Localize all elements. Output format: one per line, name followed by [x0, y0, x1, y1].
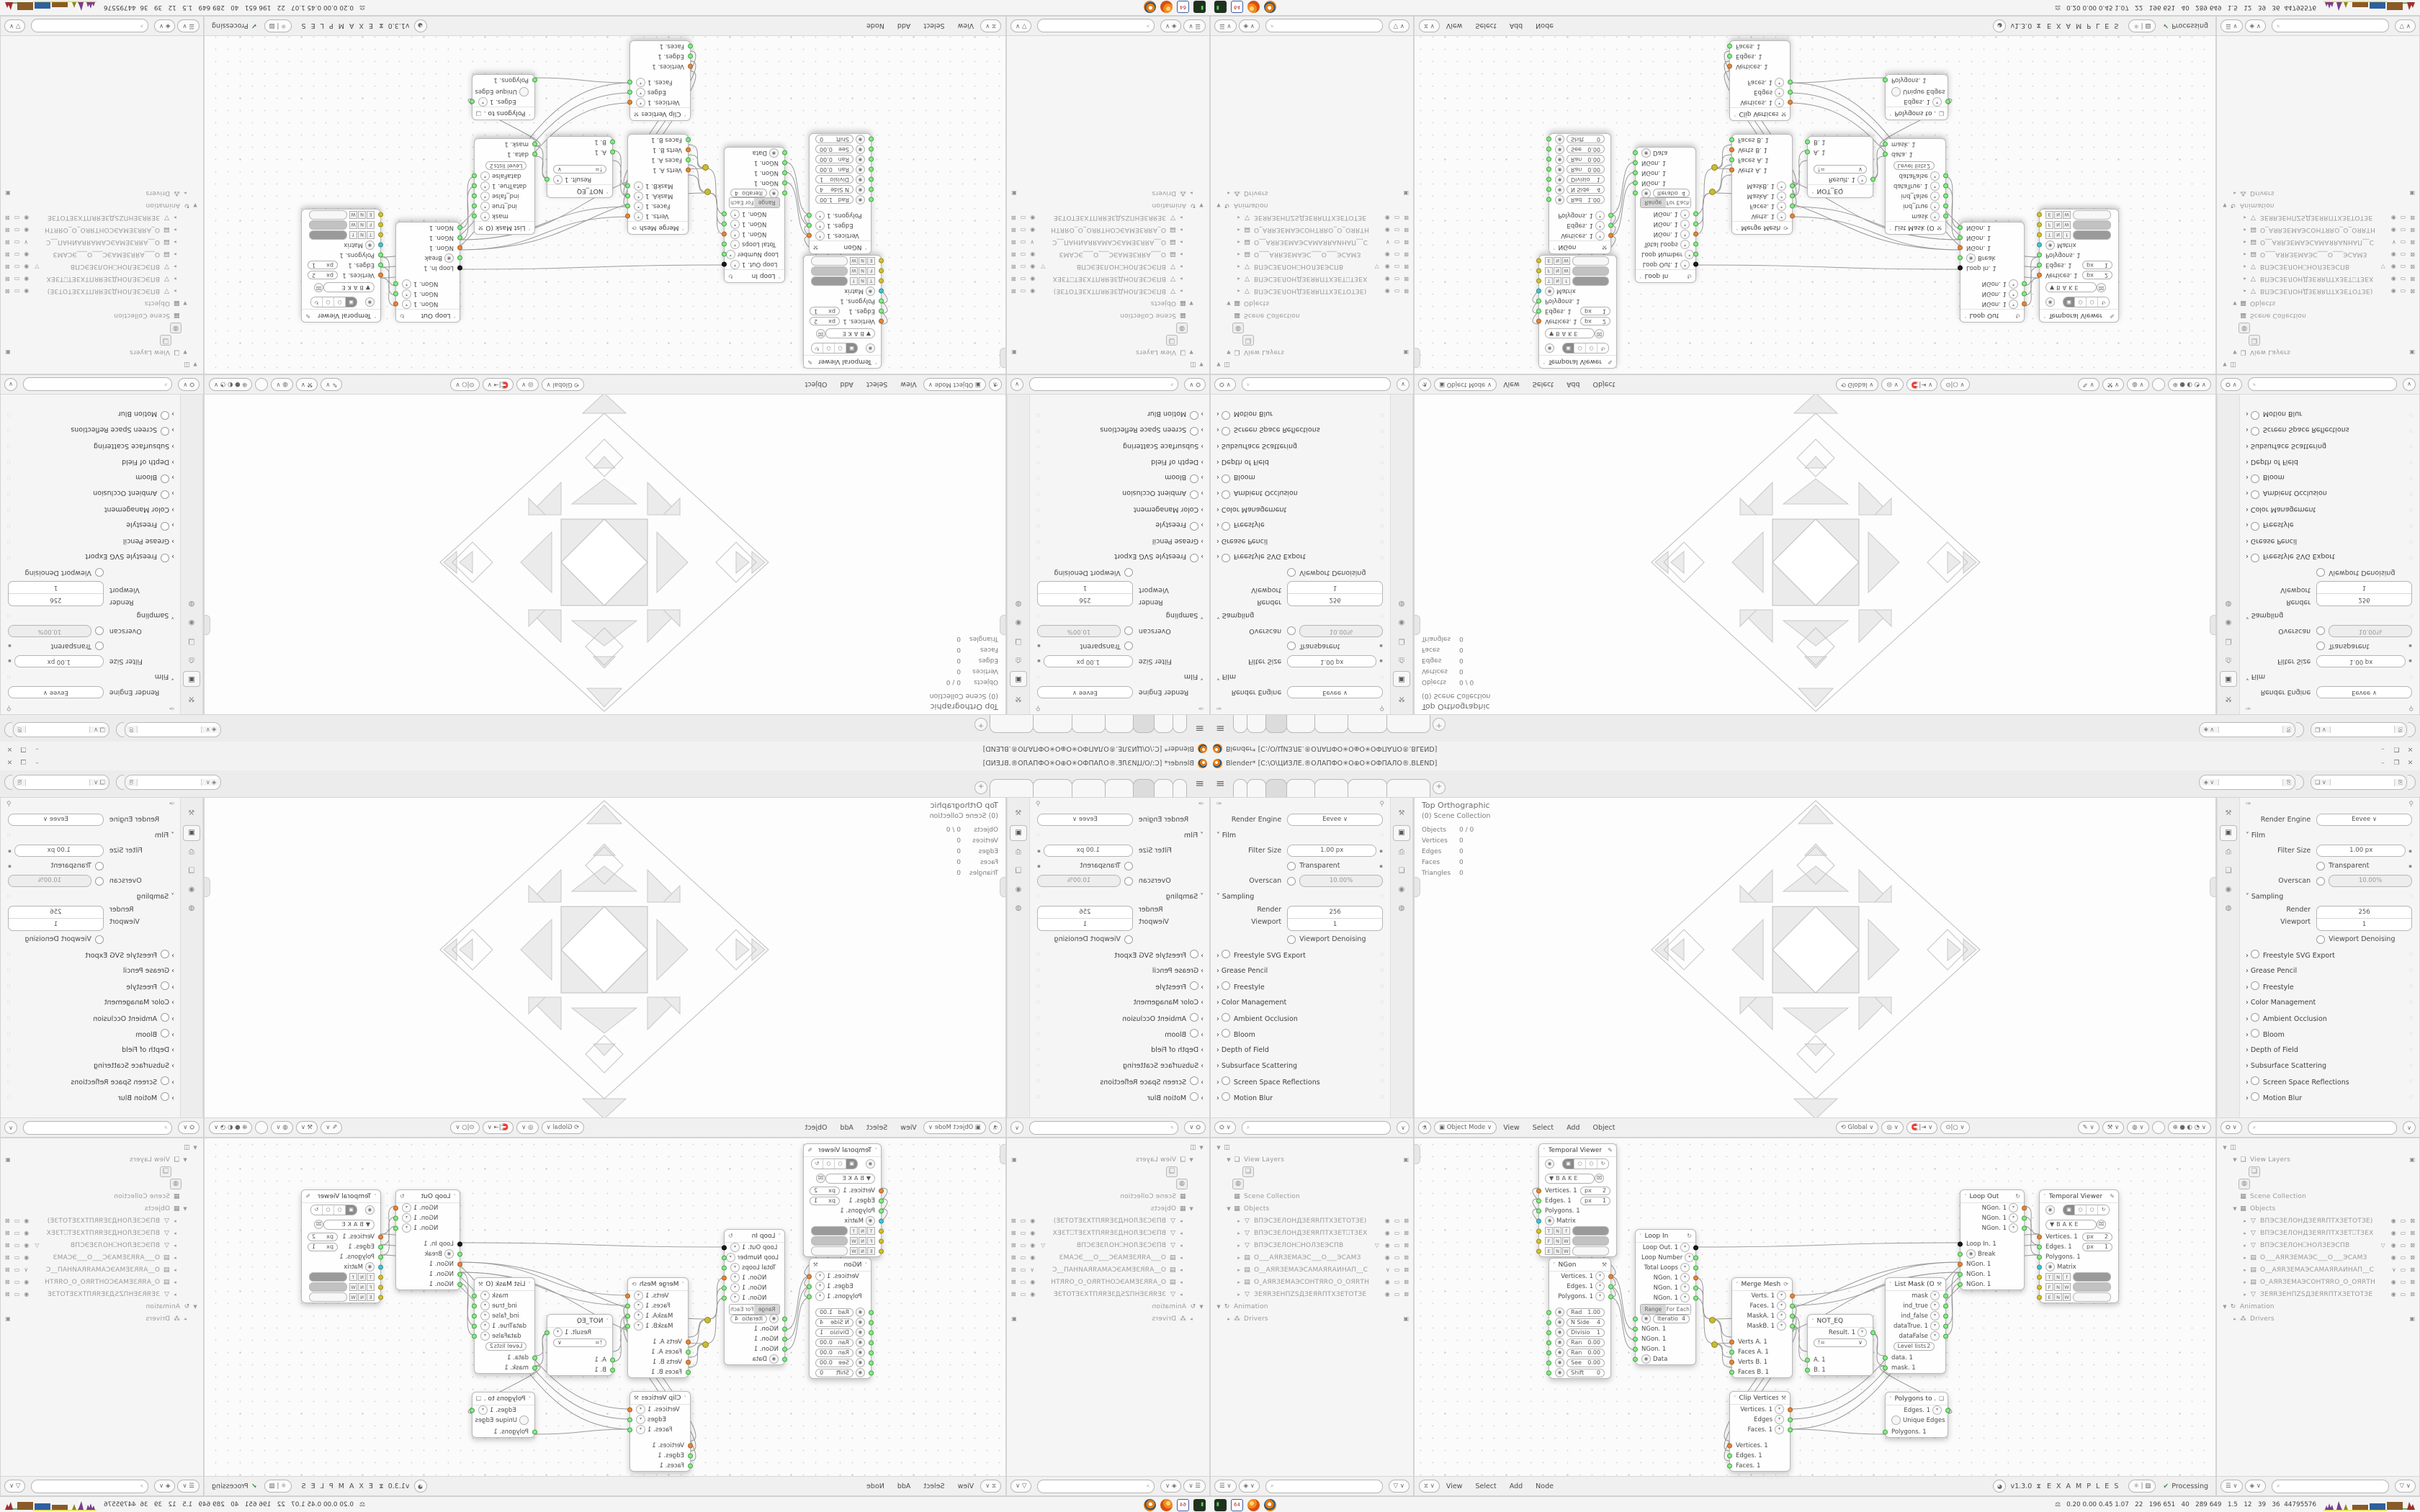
socket-green[interactable]: [1546, 177, 1551, 182]
workspace-tab[interactable]: [1314, 779, 1348, 797]
socket-green[interactable]: [1790, 184, 1795, 189]
color-swatch[interactable]: [309, 230, 347, 240]
node-row-in[interactable]: Loop In. 1: [1960, 263, 2024, 273]
color-swatch[interactable]: [2073, 1272, 2111, 1282]
screen-icon[interactable]: ▭: [2401, 239, 2406, 246]
bake-button[interactable]: ▼ BAKE: [323, 1220, 375, 1230]
socket-menu-icon[interactable]: ▾: [480, 1321, 490, 1331]
row-arrow-icon[interactable]: ▼: [2231, 1206, 2238, 1212]
socket-cyan[interactable]: [1536, 1219, 1541, 1224]
node-header[interactable]: ˅Temporal Viewer✎: [1539, 1144, 1616, 1157]
row-arrow-icon[interactable]: ▼: [1188, 1157, 1195, 1163]
node-header-icon[interactable]: ↻: [400, 1193, 408, 1200]
screen-icon[interactable]: ▭: [1021, 276, 1026, 282]
viewer-display-toggles[interactable]: ▣○○↻: [1562, 343, 1609, 354]
socket-green[interactable]: [1633, 1327, 1638, 1332]
node-row-icons[interactable]: ◉▣○○↻: [804, 341, 881, 355]
toggle-icon[interactable]: ▣: [1011, 1315, 1017, 1322]
render-visibility-icon[interactable]: ⊠: [5, 239, 10, 246]
node-row-field[interactable]: ◉See0.00: [1549, 1358, 1610, 1368]
render-samples-value[interactable]: 256: [2317, 595, 2411, 606]
px-field[interactable]: px1: [2082, 1243, 2112, 1251]
node-row-out[interactable]: Faces. 1▾: [1730, 1425, 1790, 1435]
render-engine-select[interactable]: Eevee ∨: [2316, 686, 2412, 698]
node-header[interactable]: ˅List Mask (O..⚒: [1886, 221, 1945, 234]
socket-green[interactable]: [1536, 1199, 1541, 1204]
number-field[interactable]: Divisio1: [1567, 1328, 1605, 1337]
socket-green[interactable]: [1883, 1366, 1888, 1371]
node-row-button[interactable]: Level lists2: [1886, 1341, 1945, 1353]
workspace-tab[interactable]: [1348, 715, 1387, 733]
render-visibility-icon[interactable]: ⊠: [5, 264, 10, 270]
socket-green[interactable]: [1608, 223, 1613, 228]
node-row-out[interactable]: Result. 1▾: [547, 174, 612, 184]
viewport-3d[interactable]: Top Orthographic (0) Scene Collection Ob…: [1414, 374, 2216, 715]
overscan-checkbox[interactable]: [1124, 627, 1133, 636]
outliner-row-object-camera[interactable]: ▸▤О_АЯRЗЕМАЭСОНТЯRО_О_ОЯRТН◉▭⊠: [2, 224, 202, 236]
expand-arrow-icon[interactable]: ›: [1216, 1015, 1222, 1023]
socket-orange[interactable]: [2037, 273, 2042, 278]
node-row-radio[interactable]: Unique Edges: [1886, 1416, 1948, 1427]
number-field[interactable]: N Side4: [815, 1318, 853, 1327]
viewer-toggle-icon[interactable]: ↻: [2098, 297, 2109, 307]
swatch-option-button[interactable]: E: [1545, 1247, 1553, 1255]
viewport-menu-select[interactable]: Select: [1533, 1124, 1554, 1132]
node-row-out[interactable]: NGon. 1▾: [1636, 229, 1695, 239]
node-menu-view[interactable]: View: [958, 22, 974, 30]
outliner-row-object-camera[interactable]: ▸▤О__АЯRЗЕМАЭСАМАЯRАИНАП__С∨▭⊠: [1008, 236, 1208, 248]
socket-olive[interactable]: [1536, 1249, 1541, 1254]
outliner-row-world-item[interactable]: ◍: [1008, 1178, 1208, 1190]
socket-green[interactable]: [782, 1347, 787, 1352]
node-row-out[interactable]: ind_true▾: [1886, 1301, 1945, 1311]
screen-icon[interactable]: ▭: [14, 1254, 20, 1261]
socket-orange[interactable]: [688, 1444, 693, 1449]
color-swatch[interactable]: [1572, 256, 1609, 266]
eye-icon[interactable]: ◉: [2391, 276, 2396, 282]
outliner-row-object-camera[interactable]: ▸▤О__АЯRЗЕМАЭСАМАЯRАИНАП__С∨▭⊠: [2, 236, 202, 248]
node-header[interactable]: ˅Temporal Viewer✎: [2040, 309, 2118, 322]
node-row-in[interactable]: Verts B. 1: [1732, 145, 1792, 155]
socket-green[interactable]: [686, 138, 691, 143]
toggle-button[interactable]: ◉: [1641, 148, 1651, 158]
expand-arrow-icon[interactable]: ›: [2246, 506, 2251, 514]
swatch-option-button[interactable]: T: [367, 231, 375, 239]
node-row-in[interactable]: NGon. 1: [1636, 168, 1695, 178]
node-row-toggle[interactable]: ◉Break: [396, 253, 460, 263]
node-row-in[interactable]: Polygons. 1: [804, 296, 881, 306]
row-arrow-icon[interactable]: ▼: [1225, 350, 1232, 356]
swatch-option-button[interactable]: f: [2063, 231, 2071, 239]
node-row-in[interactable]: data. 1: [475, 1353, 534, 1363]
properties-options-button[interactable]: ∨: [1010, 1121, 1023, 1134]
id-type-icon[interactable]: ❏ ∨: [89, 726, 109, 733]
section-checkbox[interactable]: [2251, 1013, 2259, 1022]
viewer-toggle-icon[interactable]: ○: [333, 297, 345, 307]
expand-arrow-icon[interactable]: ›: [169, 1079, 174, 1086]
properties-tab-scene[interactable]: ◉: [2220, 615, 2236, 629]
px-field[interactable]: px1: [810, 1197, 840, 1205]
socket-green[interactable]: [782, 1327, 787, 1332]
display-mode-selector[interactable]: ☰ ∨: [1214, 19, 1237, 32]
node-header-icon[interactable]: ✎: [305, 1193, 313, 1200]
node-row-swatch[interactable]: ENW: [302, 1292, 380, 1302]
socket-menu-icon[interactable]: ▾: [2009, 300, 2018, 309]
toggle-icon[interactable]: ▣: [1403, 1156, 1409, 1163]
anim-dot-icon[interactable]: ▪: [1379, 863, 1383, 869]
socket-menu-icon[interactable]: ▾: [730, 230, 740, 239]
socket-green[interactable]: [627, 90, 632, 95]
node-row-out[interactable]: MaskB. 1▾: [628, 181, 688, 191]
node-row-in[interactable]: Faces. 1: [630, 41, 690, 51]
outliner-row-view-layer-item[interactable]: ❏: [2, 334, 202, 346]
socket-green[interactable]: [722, 252, 727, 257]
sverchok-node-editor[interactable]: ˅Temporal Viewer✎◉▣○○↻▼ BAKE⌧Vertices. 1…: [204, 1138, 1006, 1496]
socket-green[interactable]: [472, 204, 477, 209]
swatch-option-button[interactable]: F: [867, 267, 875, 275]
copy-id-icon[interactable]: ⎘: [14, 726, 26, 734]
row-arrow-icon[interactable]: ▸: [171, 264, 179, 270]
id-name-field[interactable]: [2219, 775, 2282, 789]
node-clip-vertices[interactable]: ˅Clip Vertices⚒Vertices. 1▾Edges▾Faces. …: [1729, 40, 1791, 121]
node-not-eq[interactable]: ˅NOT_EQResult. 1▾!=∨A. 1B. 1: [1807, 1314, 1873, 1376]
socket-menu-icon[interactable]: ▾: [1775, 78, 1784, 87]
filter-button[interactable]: ▽ ∨: [1010, 19, 1031, 32]
outliner-row-object-mesh[interactable]: ▸▽ВПЭСЗЕЛОН⎕НОЛЗЕЭСПВ▽◉▭⊠: [1008, 261, 1208, 273]
outliner-row-animation[interactable]: ▼↻Animation: [1008, 1300, 1208, 1313]
screen-icon[interactable]: ▭: [1021, 215, 1026, 221]
socket-green[interactable]: [457, 1252, 462, 1257]
screen-icon[interactable]: ▭: [2401, 1279, 2406, 1285]
node-header-icon[interactable]: ❏: [1936, 1395, 1944, 1402]
workspace-tab[interactable]: [1233, 779, 1247, 797]
socket-menu-icon[interactable]: ▾: [1930, 1321, 1940, 1331]
properties-tab-scene[interactable]: ◉: [184, 883, 200, 897]
outliner-row-object-mesh[interactable]: ▸▽ВПЭСЗЕЛОНДЗЕЯRПТХЗЕТ⎕ТЗЕХ◉▭⊠: [2, 273, 202, 285]
field-toggle-button[interactable]: ◉: [1555, 1358, 1564, 1367]
expand-arrow-icon[interactable]: ›: [2246, 1031, 2251, 1039]
screen-icon[interactable]: ▭: [14, 1266, 20, 1273]
socket-menu-icon[interactable]: ▾: [815, 231, 825, 240]
editor-type-icon[interactable]: ⚗: [989, 378, 1002, 391]
anim-dot-icon[interactable]: ▪: [1379, 659, 1383, 665]
row-arrow-icon[interactable]: ▸: [2231, 191, 2238, 197]
node-row-toggle[interactable]: ◉Matrix: [1539, 286, 1616, 296]
screen-icon[interactable]: ▭: [1394, 1266, 1400, 1273]
render-samples-value[interactable]: 256: [1288, 906, 1382, 918]
row-arrow-icon[interactable]: ▼: [2221, 362, 2228, 368]
number-field[interactable]: Divisio1: [815, 1328, 853, 1337]
row-arrow-icon[interactable]: ▼: [1225, 1157, 1232, 1163]
socket-green[interactable]: [1608, 1284, 1613, 1290]
id-name-field[interactable]: [138, 775, 201, 789]
field-toggle-button[interactable]: ◉: [1641, 1314, 1651, 1323]
node-row-button[interactable]: Level lists2: [475, 159, 534, 171]
field-toggle-button[interactable]: ◉: [856, 1358, 865, 1367]
toggle-icon[interactable]: ∨: [24, 1266, 28, 1273]
socket-green[interactable]: [1943, 204, 1948, 209]
row-arrow-icon[interactable]: ▼: [1225, 301, 1232, 307]
node-row-out[interactable]: Loop Number▾: [725, 249, 784, 259]
socket-green[interactable]: [1788, 90, 1793, 95]
properties-tab-render[interactable]: ▣: [2220, 671, 2237, 687]
collapsed-section[interactable]: › Freestyle∷: [1030, 978, 1209, 994]
viewer-toggle-icon[interactable]: ○: [333, 1205, 345, 1215]
render-visibility-icon[interactable]: ⊠: [2410, 1218, 2415, 1224]
outliner-row-object-mesh[interactable]: ▸▽ЗЕЯRЗЕНПZSДЗЕЯRПТХЗЕТОТЗЕ◉▭⊠: [2218, 1288, 2418, 1300]
socket-green[interactable]: [1883, 78, 1888, 83]
swatch-option-button[interactable]: F: [1545, 267, 1553, 275]
number-field[interactable]: Ran0.00: [815, 1338, 853, 1347]
node-menu-add[interactable]: Add: [897, 22, 910, 30]
filter-button[interactable]: ▽ ∨: [4, 1480, 25, 1493]
row-arrow-icon[interactable]: ▸: [171, 252, 179, 258]
socket-menu-icon[interactable]: ▾: [726, 250, 735, 259]
socket-olive[interactable]: [879, 1229, 884, 1234]
expand-arrow-icon[interactable]: ›: [1216, 1031, 1222, 1039]
number-field[interactable]: Iteratio4: [730, 189, 767, 198]
socket-olive[interactable]: [2037, 212, 2042, 217]
xray-toggle[interactable]: ◍ ∨: [271, 1121, 292, 1134]
px-field[interactable]: px1: [308, 1243, 338, 1251]
id-type-icon[interactable]: ◈ ∨: [2200, 726, 2219, 733]
shading-preview-sphere[interactable]: [255, 1121, 268, 1134]
eye-icon[interactable]: ◉: [1030, 288, 1035, 294]
swatch-option-button[interactable]: N: [2054, 211, 2062, 219]
socket-olive[interactable]: [1536, 1239, 1541, 1244]
collapse-chevron-icon[interactable]: ˅: [1889, 1282, 1892, 1287]
viewport-samples-value[interactable]: 1: [9, 582, 103, 595]
socket-menu-icon[interactable]: ▾: [480, 1311, 490, 1320]
socket-orange[interactable]: [1729, 168, 1734, 173]
render-engine-select[interactable]: Eevee ∨: [1287, 814, 1383, 826]
collapsed-section[interactable]: › Subsurface Scattering∷: [2240, 438, 2419, 454]
socket-menu-icon[interactable]: ▾: [1930, 212, 1940, 221]
socket-orange[interactable]: [625, 214, 630, 219]
eye-icon[interactable]: ◉: [2391, 227, 2396, 233]
properties-tab-render[interactable]: ▣: [183, 825, 200, 841]
node-header[interactable]: ˅NGon⚒: [810, 240, 871, 253]
node-not-eq[interactable]: ˅NOT_EQResult. 1▾!=∨A. 1B. 1: [1807, 136, 1873, 198]
collapsed-section[interactable]: › Subsurface Scattering∷: [1211, 438, 1390, 454]
socket-orange[interactable]: [1693, 1276, 1698, 1281]
socket-green[interactable]: [1945, 99, 1950, 104]
examples-label[interactable]: E X A M P L E S: [300, 22, 373, 30]
tree-type-icon[interactable]: ⧖ ∨: [980, 19, 1001, 32]
row-arrow-icon[interactable]: ▸: [2241, 276, 2249, 282]
section-checkbox[interactable]: [161, 1013, 169, 1022]
node-panel-toggles[interactable]: ⚛ | ▨: [2128, 1480, 2156, 1493]
node-row-field[interactable]: ◉Rad1.00: [810, 194, 871, 204]
render-visibility-icon[interactable]: ⊠: [1404, 1279, 1409, 1285]
render-visibility-icon[interactable]: ⊠: [5, 1266, 10, 1273]
socket-green[interactable]: [1693, 222, 1698, 227]
socket-black[interactable]: [1958, 1242, 1963, 1247]
node-temporal-viewer[interactable]: ˅Temporal Viewer✎◉▣○○↻▼ BAKE⌧Vertices. 1…: [301, 209, 381, 323]
anim-dot-icon[interactable]: ▪: [2408, 659, 2412, 665]
outliner-row-object-mesh[interactable]: ▸▽ВПЭСЗЕЛОНДЗЕЯRПТХЗЕТ⎕ТЗЕХ◉▭⊠: [2218, 1227, 2418, 1239]
node-header[interactable]: ˅Loop Out↻: [396, 309, 460, 322]
node-row-field[interactable]: ◉Divisio1: [1549, 174, 1610, 184]
viewport-samples-value[interactable]: 1: [2317, 582, 2411, 595]
node-row-out[interactable]: Total Loops▾: [1636, 239, 1695, 249]
workspace-tab[interactable]: [1348, 779, 1387, 797]
pin-icon[interactable]: ⚲: [2408, 801, 2414, 808]
viewer-toggle-icon[interactable]: ▣: [846, 1159, 857, 1169]
workspace-tab[interactable]: [990, 715, 1034, 733]
row-arrow-icon[interactable]: ▸: [171, 240, 179, 246]
node-row-bake[interactable]: ▼ BAKE⌧: [804, 1171, 881, 1186]
workspace-tab[interactable]: [1154, 715, 1173, 733]
node-row-field[interactable]: ◉Rad1.00: [1549, 194, 1610, 204]
socket-menu-icon[interactable]: ▾: [1930, 202, 1940, 211]
render-visibility-icon[interactable]: ⊠: [2410, 1266, 2415, 1273]
socket-green[interactable]: [1693, 242, 1698, 247]
render-visibility-icon[interactable]: ⊠: [5, 251, 10, 258]
viewer-eye-button[interactable]: ◉: [1545, 1159, 1554, 1169]
node-row-out[interactable]: Edges. 1▾: [1549, 1282, 1610, 1292]
screen-icon[interactable]: ▭: [1021, 1242, 1026, 1248]
node-row-out[interactable]: Loop Number▾: [725, 1253, 784, 1263]
outliner-row-object-mesh[interactable]: ▸▽ЗЕЯRЗЕНПZSДЗЕЯRПТХЗЕТОТЗЕ◉▭⊠: [1008, 1288, 1208, 1300]
outliner-mode-button[interactable]: ◈ ∨: [1239, 1480, 1260, 1493]
expand-arrow-icon[interactable]: ›: [1198, 999, 1204, 1007]
node-not-eq[interactable]: ˅NOT_EQResult. 1▾!=∨A. 1B. 1: [547, 1314, 613, 1376]
collapse-chevron-icon[interactable]: ˅: [1811, 189, 1814, 194]
render-visibility-icon[interactable]: ⊠: [1404, 264, 1409, 270]
socket-olive[interactable]: [879, 1239, 884, 1244]
node-row-out[interactable]: NGon. 1▾: [725, 229, 784, 239]
node-header-icon[interactable]: ⚒: [634, 1395, 642, 1401]
color-swatch[interactable]: [309, 1292, 347, 1302]
node-row-in[interactable]: Edges. 1: [1730, 1451, 1790, 1461]
render-engine-select[interactable]: Eevee ∨: [2316, 814, 2412, 826]
section-checkbox[interactable]: [1190, 411, 1198, 420]
screen-icon[interactable]: ▭: [2401, 215, 2406, 221]
color-swatch[interactable]: [309, 220, 347, 230]
row-arrow-icon[interactable]: ▸: [1188, 1316, 1195, 1322]
field-toggle-button[interactable]: ◉: [769, 1314, 779, 1323]
node-row-in[interactable]: Faces. 1: [1730, 1461, 1790, 1471]
node-row-out[interactable]: Polygons. 1▾: [1549, 210, 1610, 220]
outliner-row-object-camera[interactable]: ▸▤О___АЯRЗЕМАЭС___О___ЭСАМЗ◉▭⊠: [1212, 1251, 1412, 1264]
render-visibility-icon[interactable]: ⊠: [1011, 227, 1016, 233]
socket-orange[interactable]: [807, 1274, 812, 1279]
socket-green[interactable]: [1546, 147, 1551, 152]
outliner-row-drivers[interactable]: ▸⁂Drivers▣: [1212, 187, 1412, 199]
socket-green[interactable]: [1958, 235, 1963, 240]
outliner-row-world-item[interactable]: ◍: [2218, 322, 2418, 334]
swatch-option-button[interactable]: N: [859, 1247, 866, 1255]
socket-green[interactable]: [378, 1245, 383, 1250]
node-row-out[interactable]: Faces. 1▾: [1732, 201, 1792, 211]
swatch-option-button[interactable]: f: [349, 231, 357, 239]
viewer-toggle-icon[interactable]: ↻: [812, 1159, 823, 1169]
row-arrow-icon[interactable]: ▸: [171, 276, 179, 282]
filter-size-field[interactable]: 1.00 px: [1287, 845, 1376, 857]
outliner-row-view-layers[interactable]: ▼❏View Layers▣: [2, 1153, 202, 1166]
operator-select[interactable]: !=∨: [553, 1338, 606, 1347]
toggle-button[interactable]: ◉: [866, 287, 875, 296]
row-arrow-icon[interactable]: ▸: [1235, 1243, 1242, 1248]
expand-arrow-icon[interactable]: ›: [2246, 984, 2251, 991]
node-header[interactable]: ˅Merge Mesh⟳: [1732, 221, 1792, 234]
swatch-option-button[interactable]: N: [859, 257, 866, 265]
render-visibility-icon[interactable]: ⊠: [2410, 215, 2415, 221]
properties-tab-world[interactable]: ◍: [184, 901, 200, 916]
collapse-chevron-icon[interactable]: ˅: [1543, 1148, 1546, 1153]
expand-arrow-icon[interactable]: ›: [169, 1062, 174, 1070]
outliner-row-view-layer-item[interactable]: ❏: [1212, 1166, 1412, 1178]
section-sampling[interactable]: ˅ Sampling∷: [1030, 608, 1209, 624]
swatch-option-button[interactable]: f: [2063, 1273, 2071, 1281]
node-row-bake[interactable]: ▼ BAKE⌧: [804, 326, 881, 341]
row-arrow-icon[interactable]: ▸: [171, 1292, 179, 1297]
render-samples-value[interactable]: 256: [1288, 595, 1382, 606]
swatch-option-button[interactable]: T: [1545, 1227, 1553, 1235]
bake-camera-button[interactable]: ⌧: [816, 1174, 825, 1183]
node-row-pill2[interactable]: Vertices. 1px2: [302, 1232, 380, 1242]
row-arrow-icon[interactable]: ▼: [1188, 350, 1195, 356]
socket-orange[interactable]: [1729, 1360, 1734, 1365]
viewport-samples-value[interactable]: 1: [1288, 582, 1382, 595]
row-arrow-icon[interactable]: ▸: [2241, 252, 2249, 258]
socket-green[interactable]: [722, 242, 727, 247]
viewer-toggle-icon[interactable]: ▣: [1563, 343, 1574, 353]
socket-orange[interactable]: [1958, 246, 1963, 251]
color-swatch[interactable]: [811, 1226, 848, 1236]
eye-icon[interactable]: ◉: [24, 215, 29, 221]
node-row-out[interactable]: Result. 1▾: [1808, 174, 1873, 184]
socket-cyan[interactable]: [378, 243, 383, 248]
render-visibility-icon[interactable]: ⊠: [1011, 264, 1016, 270]
maximize-button[interactable]: ❐: [2393, 760, 2401, 767]
properties-context-menu[interactable]: ⛭ ∨: [2220, 1121, 2242, 1134]
expand-arrow-icon[interactable]: ›: [2246, 999, 2251, 1007]
row-arrow-icon[interactable]: ▸: [1178, 252, 1185, 258]
eye-icon[interactable]: ◉: [24, 1254, 29, 1261]
field-toggle-button[interactable]: ◉: [1641, 189, 1651, 198]
reroute-node[interactable]: [1709, 1317, 1716, 1323]
node-header[interactable]: ˅Temporal Viewer✎: [302, 1190, 380, 1203]
screen-icon[interactable]: ▭: [14, 1242, 20, 1248]
row-arrow-icon[interactable]: ▼: [1215, 1145, 1222, 1151]
row-arrow-icon[interactable]: ▸: [1178, 1279, 1185, 1285]
collapse-chevron-icon[interactable]: ˅: [1889, 111, 1892, 117]
node-row-pill2[interactable]: Edges. 1px1: [302, 1242, 380, 1252]
socket-green[interactable]: [869, 137, 874, 142]
outliner-mode-button[interactable]: ◈ ∨: [1239, 19, 1260, 32]
swatch-option-button[interactable]: F: [867, 1237, 875, 1245]
socket-menu-icon[interactable]: ▾: [730, 220, 740, 229]
socket-green[interactable]: [879, 299, 884, 304]
render-visibility-icon[interactable]: ⊠: [2410, 251, 2415, 258]
screen-icon[interactable]: ▭: [2401, 1254, 2406, 1261]
node-header[interactable]: ˅Clip Vertices⚒: [1730, 1392, 1790, 1405]
collapsed-section[interactable]: › Bloom∷: [1, 1026, 180, 1042]
outliner-row-view-layers[interactable]: ▼❏View Layers▣: [2218, 346, 2418, 359]
socket-menu-icon[interactable]: ▾: [730, 1293, 740, 1302]
workspace-tab[interactable]: [1154, 779, 1173, 797]
swatch-option-button[interactable]: E: [367, 1293, 375, 1301]
node-menu-select[interactable]: Select: [1475, 1482, 1496, 1490]
swatch-option-button[interactable]: W: [1562, 1247, 1570, 1255]
node-header[interactable]: ˅List Mask (O..⚒: [1886, 1278, 1945, 1291]
workspace-tab[interactable]: [1386, 715, 1430, 733]
node-header[interactable]: ˅NOT_EQ: [547, 1315, 612, 1328]
row-arrow-icon[interactable]: ▸: [2241, 1279, 2249, 1285]
collapsed-section[interactable]: › Freestyle SVG Export∷: [1211, 549, 1390, 565]
